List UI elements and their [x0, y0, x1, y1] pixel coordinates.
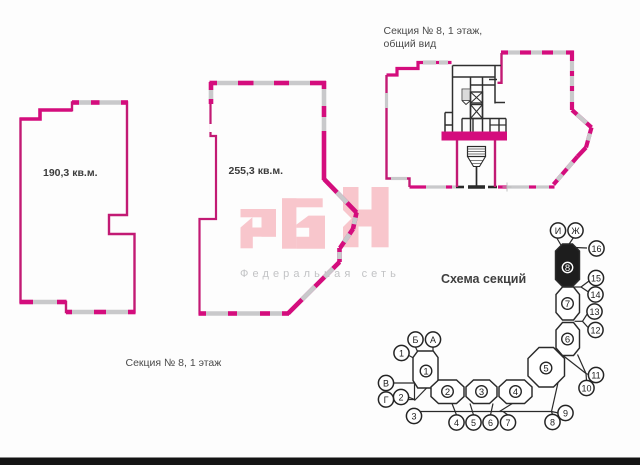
- svg-text:16: 16: [591, 244, 601, 254]
- svg-text:9: 9: [563, 409, 568, 419]
- svg-text:6: 6: [565, 334, 570, 345]
- svg-text:2: 2: [445, 387, 450, 398]
- svg-text:5: 5: [471, 418, 476, 428]
- svg-text:3: 3: [411, 412, 416, 422]
- svg-text:6: 6: [488, 418, 493, 428]
- svg-text:Секция № 8, 1 этаж,: Секция № 8, 1 этаж,: [384, 25, 483, 37]
- svg-text:15: 15: [591, 274, 601, 284]
- svg-text:4: 4: [513, 387, 518, 398]
- svg-text:14: 14: [590, 290, 600, 300]
- svg-text:Г: Г: [384, 395, 389, 405]
- svg-text:8: 8: [565, 263, 570, 274]
- svg-text:Б: Б: [413, 335, 419, 345]
- svg-text:13: 13: [589, 307, 599, 317]
- svg-text:7: 7: [565, 299, 570, 310]
- svg-text:1: 1: [399, 349, 404, 359]
- svg-text:8: 8: [550, 418, 555, 428]
- svg-text:3: 3: [479, 387, 484, 398]
- svg-text:И: И: [555, 226, 561, 236]
- svg-text:2: 2: [398, 393, 403, 403]
- svg-text:190,3 кв.м.: 190,3 кв.м.: [43, 167, 98, 179]
- svg-text:11: 11: [591, 371, 600, 381]
- svg-text:5: 5: [543, 363, 548, 374]
- svg-text:Федеральная сеть: Федеральная сеть: [240, 268, 400, 280]
- svg-text:В: В: [383, 379, 389, 389]
- svg-text:10: 10: [581, 384, 591, 394]
- svg-text:Схема секций: Схема секций: [441, 272, 526, 286]
- svg-text:1: 1: [423, 366, 428, 377]
- svg-text:4: 4: [454, 418, 459, 428]
- svg-text:А: А: [430, 335, 436, 345]
- svg-text:7: 7: [505, 418, 510, 428]
- svg-text:12: 12: [590, 326, 600, 336]
- svg-text:255,3 кв.м.: 255,3 кв.м.: [229, 165, 284, 177]
- svg-text:общий вид: общий вид: [384, 38, 437, 50]
- svg-text:Секция № 8, 1 этаж: Секция № 8, 1 этаж: [126, 357, 222, 369]
- svg-text:Ж: Ж: [571, 226, 580, 236]
